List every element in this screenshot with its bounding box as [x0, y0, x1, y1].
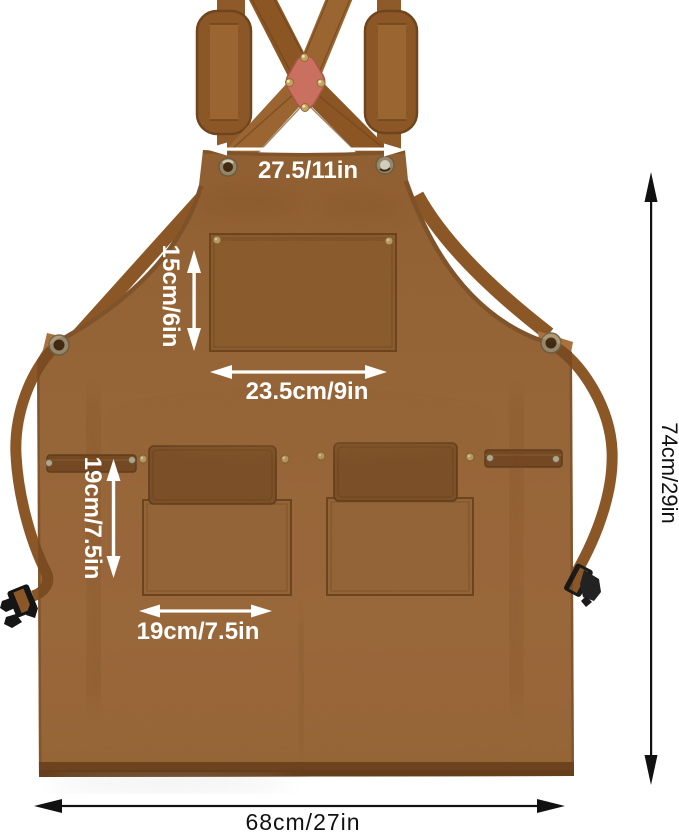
- svg-text:68cm/27in: 68cm/27in: [245, 809, 360, 835]
- svg-text:23.5cm/9in: 23.5cm/9in: [246, 378, 369, 405]
- svg-text:19cm/7.5in: 19cm/7.5in: [79, 457, 106, 580]
- svg-text:19cm/7.5in: 19cm/7.5in: [137, 618, 260, 645]
- svg-text:27.5/11in: 27.5/11in: [258, 157, 358, 184]
- svg-text:74cm/29in: 74cm/29in: [657, 422, 679, 524]
- svg-text:15cm/6in: 15cm/6in: [157, 245, 184, 348]
